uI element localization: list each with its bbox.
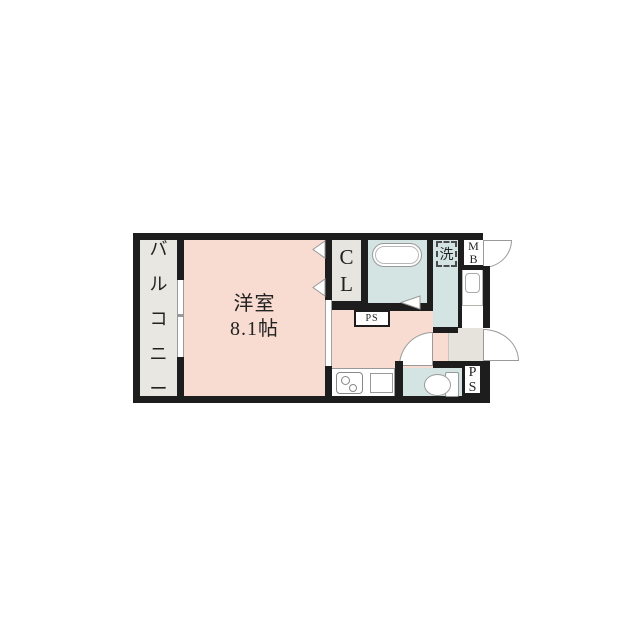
room-hall-wall-lower <box>325 366 332 403</box>
outer-wall-top <box>133 233 483 240</box>
meter-box-label: M B <box>464 240 483 265</box>
bath-door-triangle <box>399 295 422 311</box>
pipe-space-lower: P S <box>462 363 483 396</box>
kitchen-sink-icon <box>370 373 393 393</box>
washing-machine-space: 洗 <box>436 241 457 267</box>
floor-plan: 洗 PS P S バ ル コ <box>133 233 490 403</box>
closet-label: C L <box>332 243 361 299</box>
sliding-door <box>325 300 332 366</box>
stove-icon <box>336 372 363 394</box>
shoe-cabinet-area <box>462 306 483 328</box>
washbasin-sink <box>465 273 480 293</box>
outer-wall-right-lower <box>483 361 490 403</box>
pipe-space-upper-label: PS <box>365 313 378 324</box>
bath-right-wall <box>427 240 433 311</box>
bathtub-inner-line <box>375 246 419 264</box>
stove-burner-2 <box>349 384 357 392</box>
washing-machine-label: 洗 <box>440 244 454 264</box>
bathtub <box>372 243 422 267</box>
outer-wall-bottom <box>133 396 490 403</box>
stove-burner-1 <box>341 376 350 385</box>
main-room-name: 洋室 <box>234 292 276 317</box>
washbasin-left-wall <box>458 268 462 328</box>
entrance-door-arc <box>483 329 519 361</box>
pipe-space-lower-char-p: P <box>469 365 477 380</box>
toilet-bowl <box>424 374 451 396</box>
toilet-left-wall <box>395 361 403 396</box>
outer-wall-left <box>133 233 140 403</box>
pipe-space-lower-char-s: S <box>469 380 477 395</box>
meter-box-door-arc <box>483 240 512 268</box>
floor-plan-image: 洗 PS P S バ ル コ <box>0 0 640 640</box>
balcony-label: バ ル コ ニ ー <box>140 245 177 391</box>
outer-wall-right-upper <box>483 266 490 328</box>
washroom-bottom-wall <box>433 327 458 333</box>
pipe-space-upper: PS <box>354 310 390 327</box>
closet-door-triangles <box>312 239 327 299</box>
main-room-label: 洋室 8.1帖 <box>184 291 325 343</box>
main-room-size: 8.1帖 <box>230 317 279 342</box>
window <box>177 280 184 357</box>
window-center-tick <box>178 314 183 317</box>
closet-right-wall <box>361 240 368 310</box>
